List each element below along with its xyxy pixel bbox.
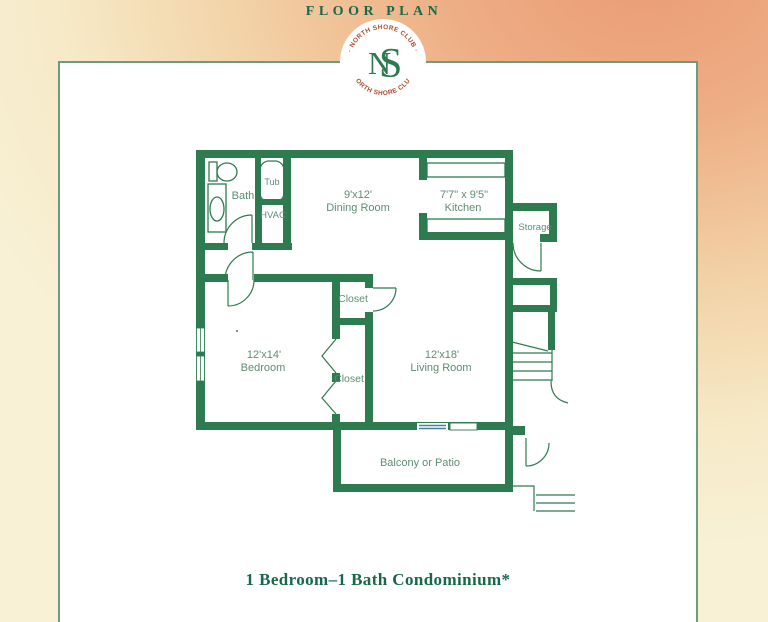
print-speck bbox=[236, 330, 238, 332]
wall-bifold-stub-top bbox=[332, 325, 340, 339]
exterior-steps bbox=[513, 486, 575, 511]
bedroom-name: Bedroom bbox=[241, 362, 286, 374]
wall-stair2-right bbox=[548, 312, 555, 350]
bedroom-dim: 12'x14' bbox=[247, 349, 281, 361]
wall-top bbox=[198, 150, 513, 158]
wall-landing-stub bbox=[513, 426, 525, 435]
living-name: Living Room bbox=[410, 362, 471, 374]
wall-bedroom-top-right bbox=[254, 274, 373, 282]
caption: 1 Bedroom–1 Bath Condominium* bbox=[0, 570, 768, 590]
page-title: FLOOR PLAN bbox=[0, 4, 768, 20]
storage-door-swing bbox=[513, 243, 541, 271]
wall-divider-upper bbox=[365, 274, 373, 288]
scanned-brochure-page: FLOOR PLAN · NORTH SHORE CLUB · NORTH SH… bbox=[0, 0, 768, 622]
sink-icon bbox=[210, 197, 224, 221]
toilet-bowl-icon bbox=[217, 163, 237, 181]
wall-hvac-left bbox=[255, 199, 262, 250]
wall-left bbox=[196, 150, 205, 430]
tub-label: Tub bbox=[264, 177, 279, 187]
living-dim: 12'x18' bbox=[425, 349, 459, 361]
wall-bifold-stub-bottom bbox=[332, 414, 340, 422]
monogram-s-letter: S bbox=[379, 41, 402, 87]
wall-bath-bottom bbox=[205, 243, 228, 250]
kitchen-dim: 7'7" x 9'5" bbox=[440, 189, 488, 201]
wall-balcony-bottom bbox=[333, 484, 513, 492]
wall-divider-lower bbox=[365, 312, 373, 422]
storage-label: Storage bbox=[518, 222, 551, 233]
closet-door-swing bbox=[373, 288, 396, 311]
wall-kitchen-stub-top bbox=[419, 158, 427, 180]
exterior-door-swing bbox=[526, 438, 549, 466]
north-shore-club-seal: · NORTH SHORE CLUB · NORTH SHORE CLUB N … bbox=[340, 19, 426, 105]
dining-dim: 9'x12' bbox=[344, 189, 372, 201]
wall-bedroom-top-left bbox=[202, 274, 228, 282]
stair-direction-line bbox=[508, 341, 548, 351]
wall-balcony-left bbox=[333, 430, 341, 492]
balcony-slider-door bbox=[450, 423, 477, 430]
wall-balcony-right bbox=[505, 430, 513, 492]
closet-lower-label: Closet bbox=[334, 373, 364, 385]
vestibule-door-swing bbox=[225, 252, 253, 280]
wall-stairbox-bottom bbox=[505, 305, 557, 312]
wall-storage-stub bbox=[540, 234, 557, 242]
stair-treads bbox=[508, 341, 568, 403]
wall-right bbox=[505, 150, 513, 430]
dining-name: Dining Room bbox=[326, 202, 390, 214]
bath-door-swing bbox=[224, 215, 252, 243]
kitchen-name: Kitchen bbox=[445, 202, 482, 214]
wall-stairbox-top bbox=[505, 278, 557, 285]
exterior-steps-lines bbox=[513, 486, 575, 511]
vanity-icon bbox=[208, 184, 226, 232]
toilet-tank-icon bbox=[209, 162, 217, 181]
wall-vestibule bbox=[252, 243, 292, 250]
closet-upper-label: Closet bbox=[338, 293, 368, 305]
bifold-door-bottom bbox=[322, 381, 336, 414]
floor-plan: Bath Tub HVAC 9'x12' Dining Room 7'7" x … bbox=[190, 140, 580, 520]
bath-label: Bath bbox=[232, 190, 255, 202]
hvac-label: HVAC bbox=[260, 210, 286, 221]
kitchen-counter-top bbox=[427, 163, 505, 177]
bifold-door-top bbox=[322, 339, 336, 373]
balcony-label: Balcony or Patio bbox=[380, 457, 460, 469]
kitchen-counter-bottom bbox=[427, 219, 505, 233]
stair-rail-curve bbox=[551, 381, 568, 403]
stairs-and-bifolds bbox=[236, 330, 575, 511]
bedroom-door-swing bbox=[228, 280, 254, 306]
